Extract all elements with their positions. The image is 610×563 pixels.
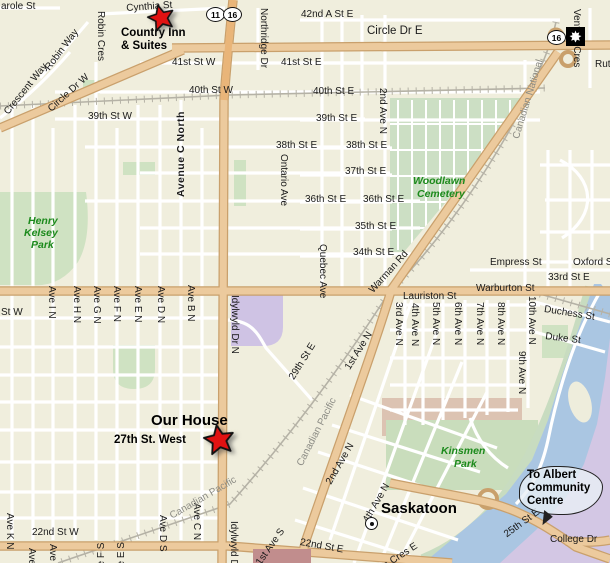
our-house-street-label: 27th St. West — [114, 434, 186, 447]
street-label: Ave — [47, 544, 58, 561]
street-label: 37th St E — [345, 166, 386, 177]
street-label: 29th St E — [287, 341, 318, 382]
street-label: Avenue C North — [176, 111, 187, 197]
street-label: Warburton St — [476, 283, 535, 294]
street-label: Park — [31, 240, 54, 251]
street-label: 40th St W — [189, 85, 233, 96]
maple-leaf-icon — [566, 27, 585, 46]
street-label: 10th Ave N — [526, 296, 537, 345]
street-label: 39th St W — [88, 111, 132, 122]
street-label: Ave E N — [132, 286, 143, 323]
street-label: Idylwyld Dr N — [229, 295, 240, 354]
street-label: Ave G N — [91, 286, 102, 324]
street-label: Ave H N — [71, 286, 82, 323]
street-label: Canadian Pacific — [168, 474, 238, 521]
city-dot-icon — [365, 517, 378, 530]
street-label: 34th St E — [353, 247, 394, 258]
street-label: Henry — [28, 216, 58, 227]
street-label: Ave D N — [155, 286, 166, 323]
street-label: Kelsey — [24, 228, 58, 239]
street-label: Cemetery — [417, 189, 465, 200]
street-label: Ave E S — [116, 542, 127, 563]
street-label: 1st Ave N — [343, 330, 375, 372]
street-label: 6th Ave N — [452, 302, 463, 345]
street-label: 1st Ave S — [254, 527, 287, 563]
map-container[interactable]: arole StCynthia St42nd A St ECircle Dr E… — [0, 0, 610, 563]
albert-community-centre-callout: To Albert Community Centre — [519, 466, 603, 515]
street-label: 8th Ave N — [495, 302, 506, 345]
street-label: 41st St E — [281, 57, 322, 68]
street-label: 36th St E — [305, 194, 346, 205]
street-label: arole St — [1, 1, 35, 12]
street-label: 35th St E — [355, 221, 396, 232]
street-label: Ave — [26, 548, 37, 563]
street-label: 38th St E — [276, 140, 317, 151]
street-label: 5th Ave N — [430, 302, 441, 345]
street-label: Duke St — [545, 331, 582, 346]
street-label: Ave I N — [46, 286, 57, 319]
street-label: Park — [454, 459, 477, 470]
street-label: Ave F N — [111, 286, 122, 322]
street-label: Ave F S — [96, 543, 107, 563]
street-label: College Dr — [550, 534, 597, 545]
street-label: Robin Cres — [95, 11, 106, 61]
street-label: 7th Ave N — [474, 302, 485, 345]
street-label: Crescent Way — [2, 61, 50, 116]
street-label: a Cres E — [381, 541, 420, 563]
street-label: 2nd Ave N — [377, 88, 388, 134]
street-label: 2nd Ave N — [324, 441, 357, 486]
street-label: Canadian Pacific — [295, 396, 339, 468]
street-label: 4th Ave N — [409, 303, 420, 346]
street-labels-layer: arole StCynthia St42nd A St ECircle Dr E… — [0, 0, 610, 563]
highway-16-shield-icon: 16 — [223, 7, 242, 22]
street-label: Ave D S — [157, 515, 168, 552]
street-label: Circle Dr W — [46, 72, 91, 114]
street-label: 42nd A St E — [301, 9, 353, 20]
street-label: 38th St E — [346, 140, 387, 151]
street-label: Rut — [595, 59, 610, 70]
street-label: Kinsmen — [441, 446, 485, 457]
street-label: 40th St E — [313, 86, 354, 97]
street-label: 9th Ave N — [516, 351, 527, 394]
street-label: Ave K N — [4, 513, 15, 550]
street-label: 33rd St E — [548, 272, 590, 283]
street-label: 39th St E — [316, 113, 357, 124]
street-label: Robin Way — [43, 27, 81, 72]
street-label: Ontario Ave — [278, 154, 289, 206]
street-label: Northridge Dr — [258, 8, 269, 68]
street-label: 3rd Ave N — [393, 302, 404, 346]
street-label: 22nd St W — [32, 527, 79, 538]
street-label: Canadian National — [511, 58, 546, 140]
street-label: Lauriston St — [403, 291, 456, 302]
street-label: Quebec Ave — [317, 244, 328, 298]
street-label: Idylwyld Dr N — [228, 521, 239, 563]
street-label: 22nd St E — [299, 537, 344, 555]
street-label: Oxford St — [573, 257, 610, 268]
street-label: 36th St E — [363, 194, 404, 205]
street-label: Woodlawn — [413, 176, 465, 187]
street-label: Circle Dr E — [367, 26, 423, 37]
street-label: 41st St W — [172, 57, 215, 68]
highway-16-east-shield-icon: 16 — [547, 30, 566, 45]
our-house-marker-star-icon — [200, 420, 237, 457]
street-label: Empress St — [490, 257, 542, 268]
street-label: Duchess St — [543, 304, 595, 323]
street-label: Ave B N — [185, 285, 196, 322]
street-label: St W — [1, 307, 23, 318]
city-label: Saskatoon — [381, 500, 457, 517]
